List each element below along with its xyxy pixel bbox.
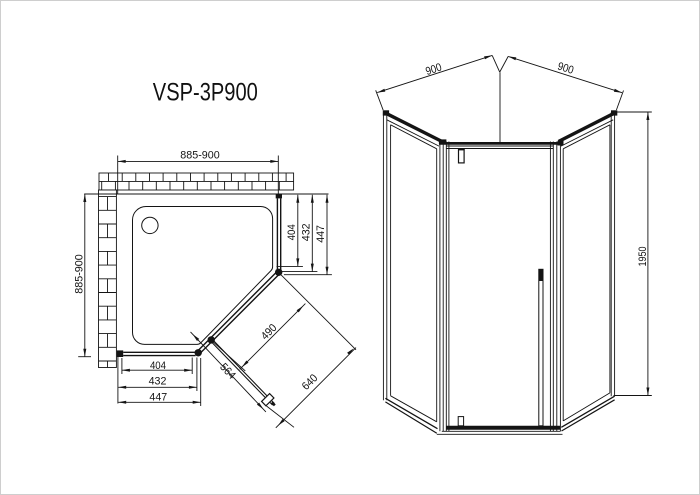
svg-text:447: 447 [315, 225, 327, 243]
svg-text:VSP-3P900: VSP-3P900 [153, 79, 258, 107]
svg-text:404: 404 [286, 224, 298, 240]
svg-text:447: 447 [149, 391, 167, 403]
svg-text:404: 404 [150, 360, 166, 372]
svg-text:432: 432 [300, 223, 312, 241]
svg-text:885-900: 885-900 [74, 254, 86, 293]
svg-text:432: 432 [149, 376, 167, 388]
svg-text:885-900: 885-900 [180, 150, 219, 162]
svg-text:1950: 1950 [637, 246, 649, 266]
